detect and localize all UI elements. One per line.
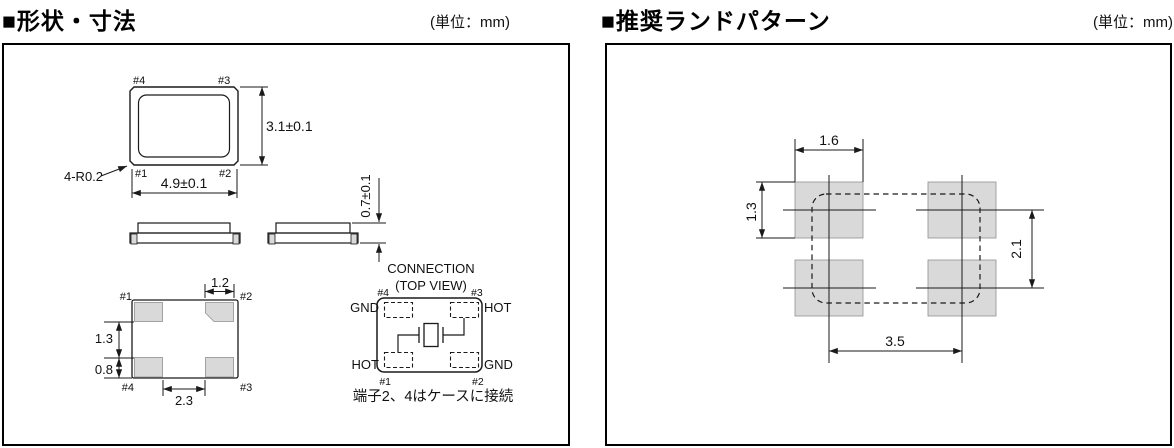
land-section-title: ■推奨ランドパターン bbox=[601, 2, 831, 36]
shape-section-title: ■形状・寸法 bbox=[2, 2, 137, 36]
shape-unit-label: (単位：mm) bbox=[430, 11, 510, 32]
land-pattern-panel bbox=[605, 43, 1172, 446]
shape-dimensions-panel bbox=[2, 43, 570, 446]
datasheet-drawing-page: ■形状・寸法 (単位：mm) ■推奨ランドパターン (単位：mm) #4 #3 … bbox=[0, 0, 1174, 448]
land-unit-label: (単位：mm) bbox=[1083, 11, 1173, 32]
